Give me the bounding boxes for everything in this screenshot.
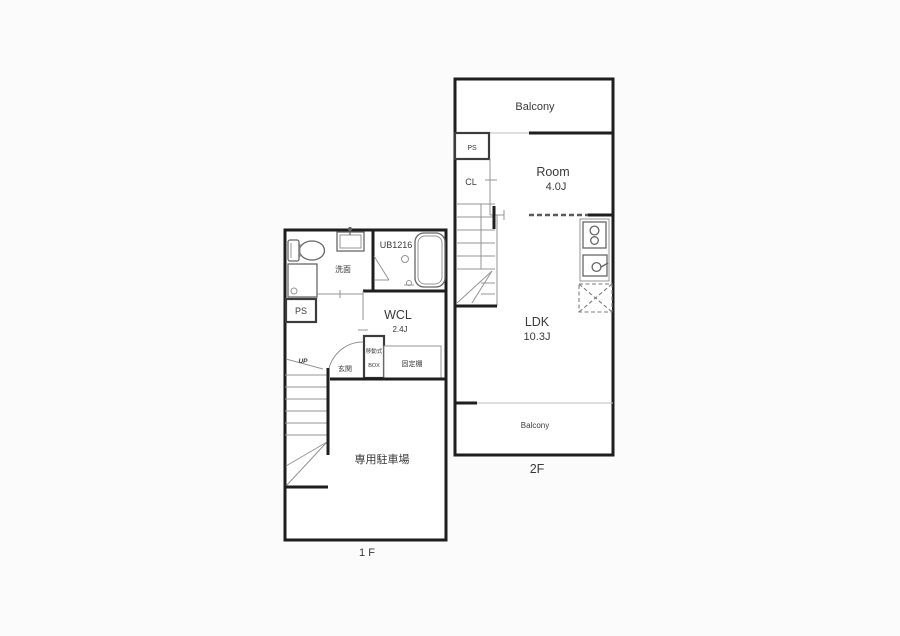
entrance-label: 玄関: [338, 364, 352, 373]
fixed-shelf-label: 固定棚: [402, 359, 423, 368]
kitchen-counter-icon: [580, 219, 609, 281]
room-label: Room: [536, 165, 569, 179]
washroom-label: 洗面: [335, 264, 351, 274]
movable-box: [364, 336, 384, 378]
balcony-bottom-label: Balcony: [521, 421, 549, 430]
parking-label: 専用駐車場: [355, 452, 410, 466]
up-label: UP: [298, 358, 308, 365]
balcony-top-label: Balcony: [515, 101, 555, 113]
floor1-plan: 洗面 UB1216 PS WCL 2.4J UP 玄関 移動式 BOX 固定棚 …: [285, 228, 446, 560]
wcl-label: WCL: [384, 308, 412, 322]
bath-label: UB1216: [380, 240, 413, 250]
movable-box-label-1: 移動式: [366, 347, 383, 355]
cl-label: CL: [465, 177, 477, 187]
floor2-label: 2F: [530, 462, 545, 476]
floor2-plan: Balcony PS CL Room 4.0J LDK 10.3J Balcon…: [455, 79, 613, 476]
refrigerator-space-icon: [579, 284, 612, 312]
ps-label-1f: PS: [295, 306, 307, 316]
stove-icon: [583, 222, 606, 248]
ps-label-2f: PS: [467, 145, 477, 152]
wcl-size-label: 2.4J: [392, 325, 407, 334]
ldk-size-label: 10.3J: [524, 331, 551, 343]
floor1-label: 1 F: [359, 547, 375, 559]
floorplan-canvas: Balcony PS CL Room 4.0J LDK 10.3J Balcon…: [0, 0, 900, 636]
room-size-label: 4.0J: [546, 181, 567, 193]
sink-icon: [583, 255, 608, 276]
washing-machine-pan-icon: [288, 264, 317, 297]
toilet-icon: [288, 240, 325, 261]
bathtub-icon: [415, 233, 445, 287]
ldk-label: LDK: [525, 315, 550, 329]
movable-box-label-2: BOX: [368, 363, 380, 369]
